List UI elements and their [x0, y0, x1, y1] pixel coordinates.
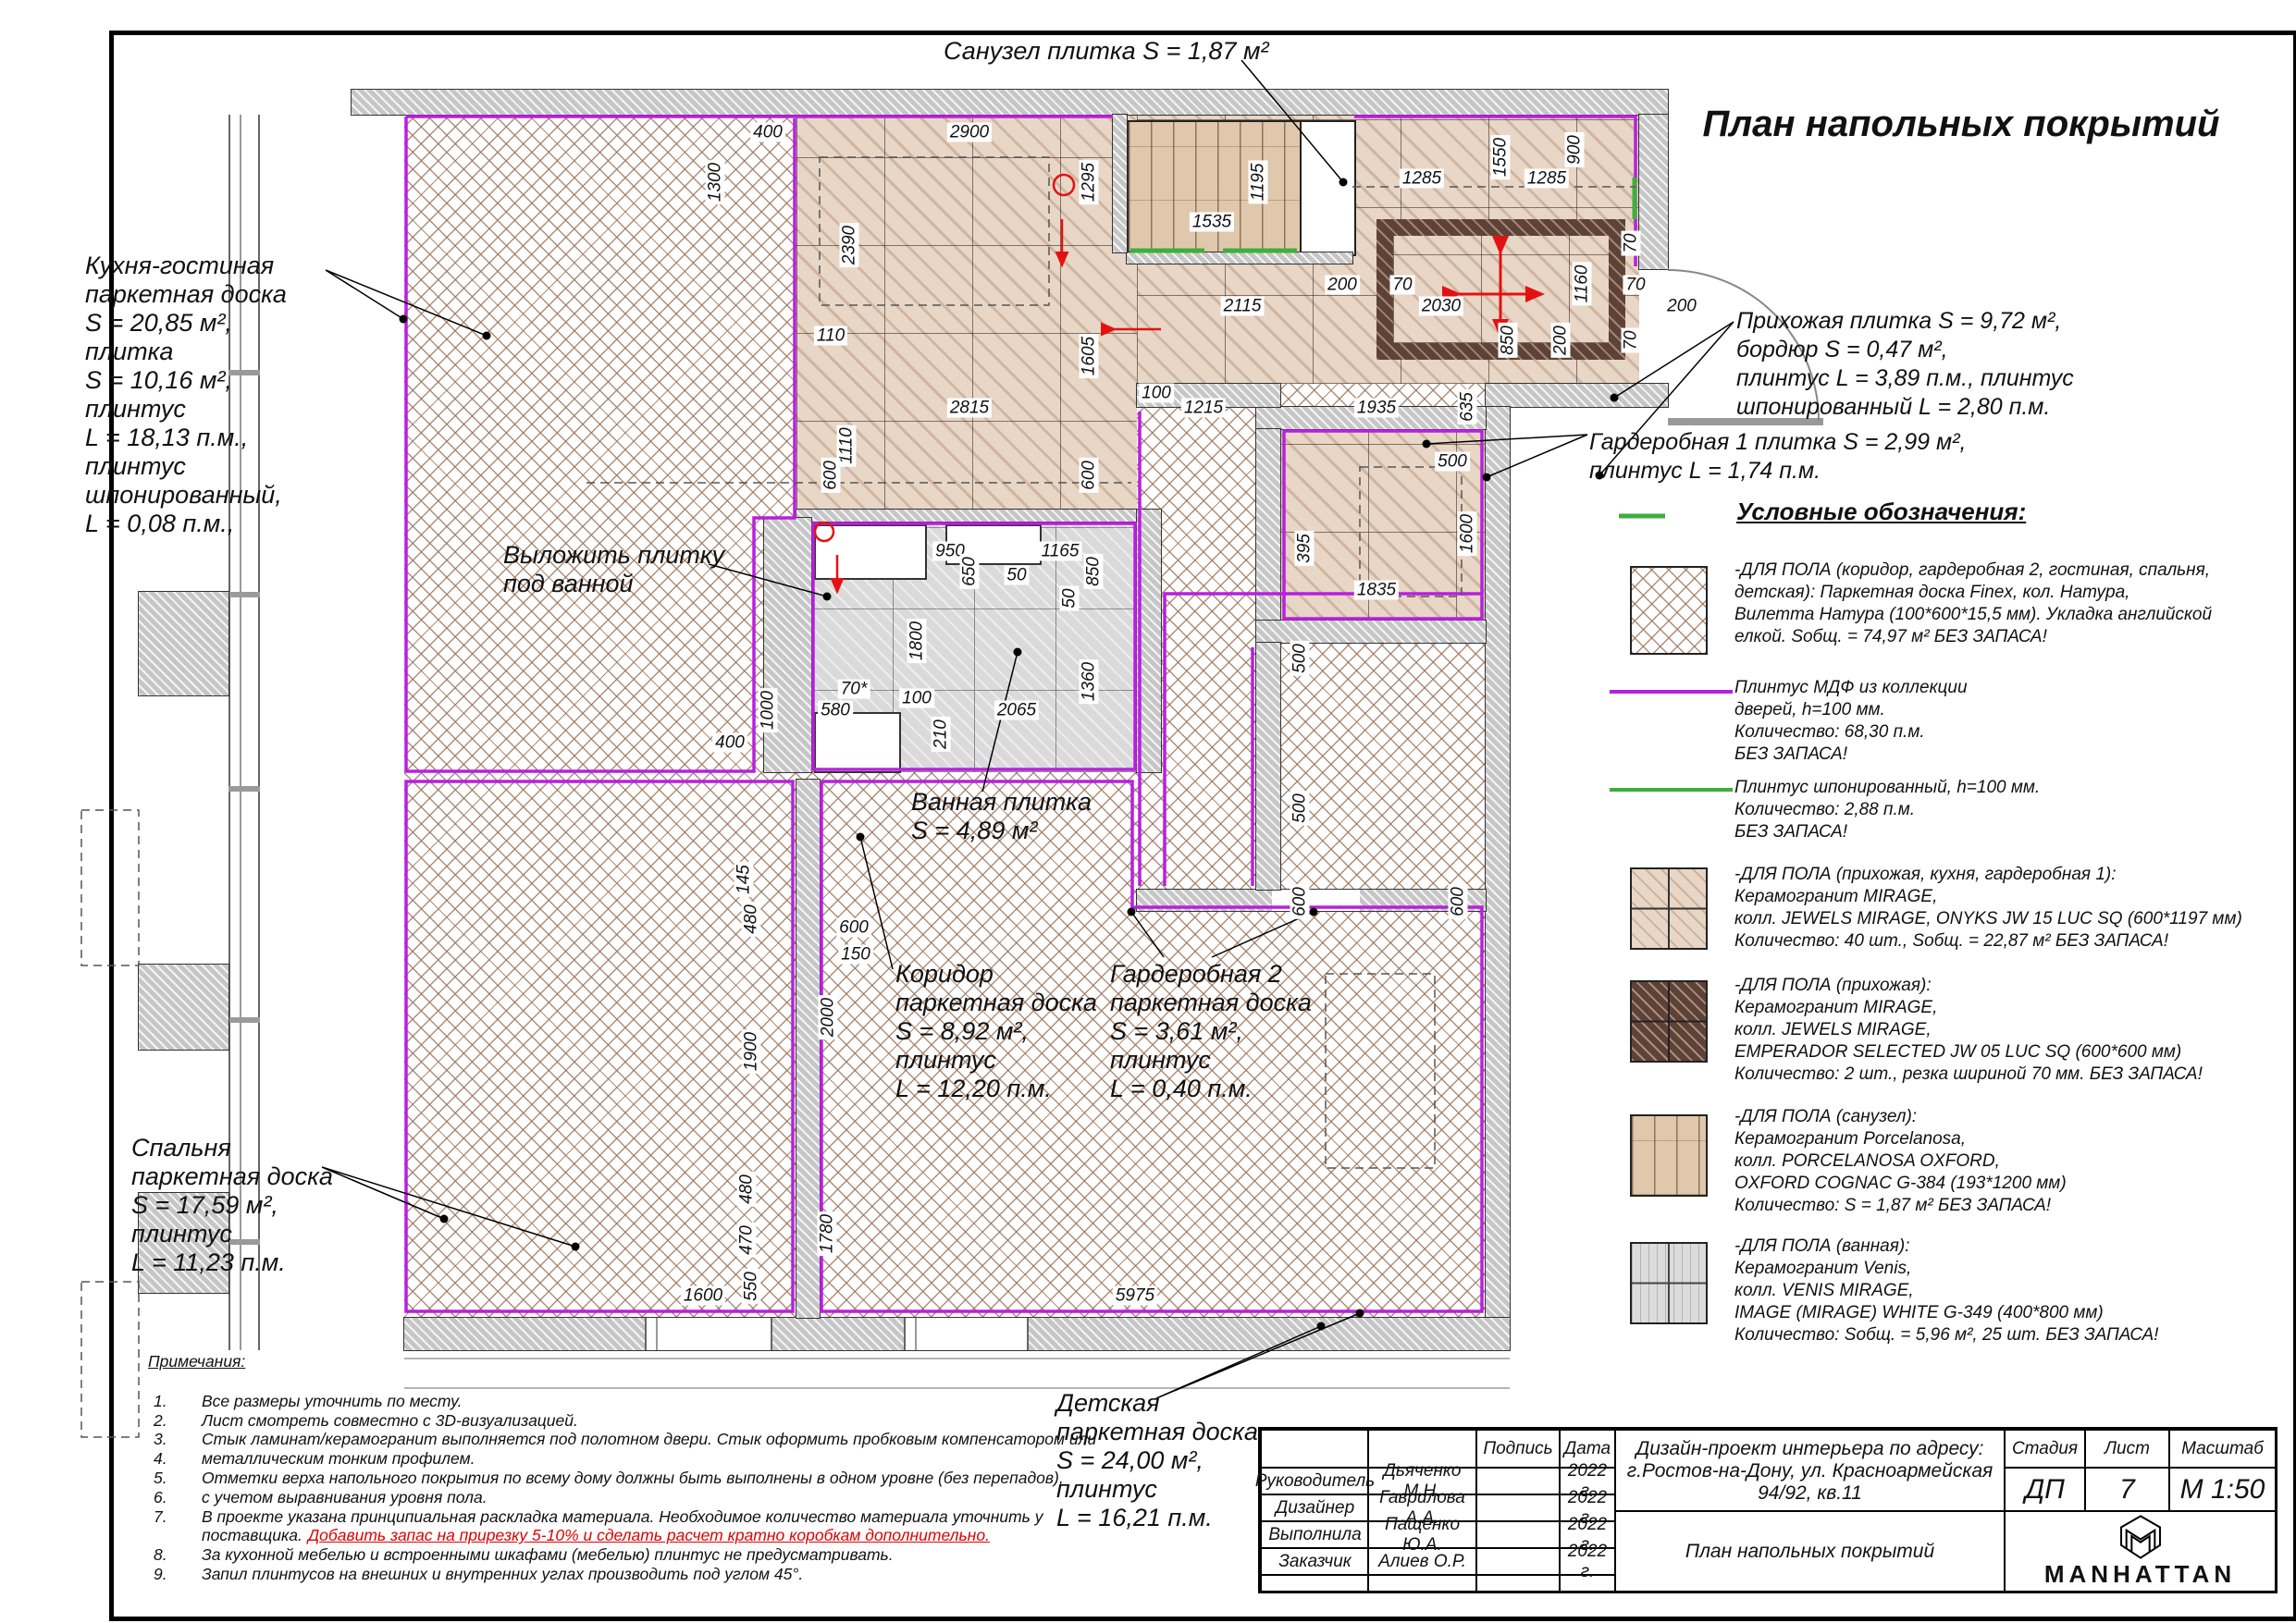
dim-label: 500 — [1290, 641, 1310, 676]
dim-label: 1800 — [907, 619, 927, 663]
dim-label: 145 — [734, 862, 754, 897]
note-text: Стык ламинат/керамогранит выполняется по… — [202, 1430, 1096, 1449]
dim-label: 100 — [1139, 384, 1174, 403]
text-line: Гардеробная 1 плитка S = 2,99 м², — [1589, 428, 1966, 457]
tb-name: Алиев О.Р. — [1367, 1547, 1477, 1576]
dim-label: 1600 — [681, 1286, 725, 1306]
wall — [1256, 429, 1280, 643]
tb-role: Выполнила — [1261, 1520, 1369, 1549]
dim-label: 500 — [1290, 791, 1310, 826]
dim-label: 50 — [1060, 585, 1080, 610]
dim-label: 50 — [1004, 566, 1029, 585]
legend-heading: Условные обозначения: — [1736, 498, 2026, 526]
wall — [796, 510, 1137, 522]
text-line: колл. JEWELS MIRAGE, — [1734, 1019, 2203, 1041]
text-line: Коридор — [895, 960, 1097, 989]
legend-item-plinth-mdf: Плинтус МДФ из коллекциидверей, h=100 мм… — [1734, 677, 1968, 766]
tb-project-line1: Дизайн-проект интерьера по адресу: — [1636, 1438, 1983, 1460]
dim-label: 100 — [899, 689, 934, 708]
text-line: Количество: 68,30 п.м. — [1734, 721, 1968, 744]
text-line: L = 0,08 п.м., — [85, 510, 287, 538]
wc-shaft — [1300, 120, 1356, 256]
dim-label: 600 — [1080, 458, 1099, 493]
legend-swatch-planks — [1630, 1114, 1708, 1197]
text-line: колл. VENIS MIRAGE, — [1734, 1280, 2158, 1302]
annotation-vylozhit: Выложить плиткупод ванной — [503, 541, 724, 598]
dim-label: 900 — [1565, 132, 1585, 167]
dim-label: 1195 — [1249, 161, 1268, 204]
text-line: под ванной — [503, 570, 724, 598]
wall — [1256, 643, 1280, 890]
dim-label: 200 — [1551, 323, 1571, 358]
dim-label: 1000 — [759, 688, 778, 732]
note-item: 6.с учетом выравнивания уровня пола. — [148, 1488, 1119, 1507]
tb-project-line2: г.Ростов-на-Дону, ул. Красноармейская 94… — [1615, 1460, 2005, 1505]
tb-sign-header: Подпись — [1475, 1430, 1561, 1469]
notes-heading: Примечания: — [148, 1352, 1119, 1371]
text-line: S = 8,92 м², — [895, 1017, 1097, 1046]
outer-pier — [139, 592, 228, 695]
manhattan-logo-icon — [2117, 1514, 2165, 1560]
text-line: плинтус L = 3,89 п.м., плинтус — [1736, 364, 2074, 393]
dim-label: 2815 — [947, 399, 992, 418]
dim-label: 1295 — [1080, 160, 1099, 204]
text-line: Количество: 40 шт., Sобщ. = 22,87 м² БЕЗ… — [1734, 930, 2242, 953]
note-number: 7. — [148, 1507, 202, 1527]
dim-label: 210 — [932, 717, 951, 752]
text-line: Гардеробная 2 — [1110, 960, 1312, 989]
note-number: 6. — [148, 1488, 202, 1507]
text-line: L = 18,13 п.м., — [85, 424, 287, 452]
dim-label: 200 — [1664, 297, 1699, 316]
notes-list: 1.Все размеры уточнить по месту.2.Лист с… — [148, 1392, 1119, 1584]
wall — [1256, 621, 1486, 643]
dim-label: 2065 — [994, 701, 1039, 720]
dim-label: 1600 — [1458, 511, 1477, 556]
tb-name: Пащенко Ю.А. — [1367, 1520, 1477, 1549]
note-text: За кухонной мебелью и встроенными шкафам… — [202, 1545, 894, 1565]
text-line: L = 0,40 п.м. — [1110, 1075, 1312, 1103]
annotation-garderob2: Гардеробная 2паркетная доскаS = 3,61 м²,… — [1110, 960, 1312, 1103]
tb-list-value: 7 — [2084, 1467, 2170, 1512]
text-line: БЕЗ ЗАПАСА! — [1734, 744, 1968, 766]
text-line: детская): Паркетная доска Finex, кол. На… — [1734, 582, 2212, 604]
text-line: Количество: Sобщ. = 5,96 м², 25 шт. БЕЗ … — [1734, 1324, 2158, 1346]
note-item: 8.За кухонной мебелью и встроенными шкаф… — [148, 1545, 1119, 1565]
note-text: с учетом выравнивания уровня пола. — [202, 1488, 488, 1507]
dim-label: 70* — [838, 680, 870, 699]
wall — [1127, 252, 1352, 264]
note-number: 9. — [148, 1565, 202, 1584]
dim-label: 70 — [1623, 276, 1648, 295]
legend-item-tile-dark: -ДЛЯ ПОЛА (прихожая):Керамогранит MIRAGE… — [1734, 975, 2203, 1086]
note-item: 1.Все размеры уточнить по месту. — [148, 1392, 1119, 1411]
tb-empty — [1475, 1574, 1561, 1592]
note-number: 8. — [148, 1545, 202, 1565]
dim-label: 110 — [814, 326, 847, 346]
note-text: Запил плинтусов на внешних и внутренних … — [202, 1565, 803, 1584]
dim-label: 600 — [1290, 884, 1310, 919]
text-line: колл. PORCELANOSA OXFORD, — [1734, 1150, 2067, 1173]
sheet: { "title": "План напольных покрытий", "a… — [0, 0, 2296, 1623]
note-item: 5.Отметки верха напольного покрытия по в… — [148, 1469, 1119, 1488]
dim-label: 1900 — [742, 1029, 761, 1074]
note-text: металлическим тонким профилем. — [202, 1449, 475, 1469]
door-gap — [1272, 890, 1360, 911]
text-line: елкой. Sобщ. = 74,97 м² БЕЗ ЗАПАСА! — [1734, 626, 2212, 648]
dim-label: 1285 — [1400, 169, 1444, 189]
wall — [1639, 115, 1668, 269]
tb-empty — [1261, 1574, 1369, 1592]
text-line: IMAGE (MIRAGE) WHITE G-349 (400*800 мм) — [1734, 1302, 2158, 1324]
note-warning-text: Добавить запас на прирезку 5-10% и сдела… — [308, 1526, 990, 1545]
text-line: паркетная доска — [1110, 989, 1312, 1017]
note-item: 2.Лист смотреть совместно с 3D-визуализа… — [148, 1411, 1119, 1431]
dim-label: 480 — [737, 1172, 757, 1207]
text-line: OXFORD COGNAC G-384 (193*1200 мм) — [1734, 1173, 2067, 1195]
note-number: 1. — [148, 1392, 202, 1411]
dim-label: 1835 — [1354, 581, 1399, 600]
legend-swatch-tile-beige — [1630, 867, 1708, 950]
tb-role: Заказчик — [1261, 1547, 1369, 1576]
text-line: бордюр S = 0,47 м², — [1736, 336, 2074, 364]
room-wc-planks — [1127, 120, 1303, 256]
legend-swatch-parquet — [1630, 566, 1708, 655]
dim-label: 635 — [1458, 389, 1477, 424]
outer-pier — [139, 965, 228, 1050]
text-line: плинтус L = 1,74 п.м. — [1589, 457, 1966, 486]
dim-label: 600 — [1449, 884, 1468, 919]
annotation-garderob1: Гардеробная 1 плитка S = 2,99 м²,плинтус… — [1589, 428, 1966, 486]
tb-sign — [1475, 1547, 1561, 1576]
text-line: S = 3,61 м², — [1110, 1017, 1312, 1046]
text-line: S = 17,59 м², — [131, 1191, 333, 1220]
dim-label: 5975 — [1113, 1286, 1157, 1306]
legend-swatch-plinth-veneer — [1610, 788, 1733, 792]
text-line: Ванная плитка — [911, 788, 1092, 817]
page-title: План напольных покрытий — [1702, 104, 2220, 145]
text-line: Количество: 2 шт., резка шириной 70 мм. … — [1734, 1064, 2203, 1086]
legend-swatch-plinth-mdf — [1610, 690, 1733, 694]
tb-scale-value: М 1:50 — [2168, 1467, 2277, 1512]
dim-label: 395 — [1295, 531, 1315, 566]
wall — [1137, 510, 1161, 772]
note-number: 5. — [148, 1469, 202, 1488]
dim-label: 70 — [1389, 276, 1414, 295]
dim-label: 500 — [1435, 452, 1470, 472]
window-sill — [228, 786, 260, 792]
note-number: 2. — [148, 1411, 202, 1431]
wall — [1486, 384, 1668, 407]
tb-empty — [1367, 1574, 1477, 1592]
text-line: паркетная доска — [131, 1162, 333, 1191]
legend-swatch-tile-gray — [1630, 1242, 1708, 1324]
annotation-prihozhaya: Прихожая плитка S = 9,72 м²,бордюр S = 0… — [1736, 307, 2074, 422]
legend-item-planks: -ДЛЯ ПОЛА (санузел):Керамогранит Porcela… — [1734, 1106, 2067, 1217]
text-line: L = 12,20 п.м. — [895, 1075, 1097, 1103]
notes: Примечания: 1.Все размеры уточнить по ме… — [148, 1352, 1119, 1584]
tb-date: 2022 г. — [1559, 1547, 1616, 1576]
legend-swatch-tile-dark — [1630, 980, 1708, 1063]
note-item: 3.Стык ламинат/керамогранит выполняется … — [148, 1430, 1119, 1449]
dim-label: 480 — [742, 902, 761, 937]
text-line: Кухня-гостиная — [85, 252, 287, 280]
window-sill — [228, 592, 260, 597]
text-line: дверей, h=100 мм. — [1734, 699, 1968, 721]
dim-label: 1935 — [1354, 399, 1399, 418]
text-line: -ДЛЯ ПОЛА (коридор, гардеробная 2, гости… — [1734, 559, 2212, 582]
legend-item-tile-beige: -ДЛЯ ПОЛА (прихожая, кухня, гардеробная … — [1734, 864, 2242, 953]
dim-label: 2900 — [947, 123, 992, 142]
dim-label: 400 — [712, 733, 747, 753]
dim-label: 2000 — [819, 995, 838, 1039]
dim-label: 200 — [1325, 276, 1360, 295]
tb-stage-value: ДП — [2004, 1467, 2086, 1512]
wall — [1486, 407, 1510, 1343]
text-line: Количество: 2,88 п.м. — [1734, 799, 2040, 821]
dim-label: 580 — [818, 701, 853, 720]
text-line: плитка — [85, 338, 287, 366]
text-line: плинтус — [85, 452, 287, 481]
dim-label: 70 — [1622, 230, 1641, 255]
dim-label: 1160 — [1573, 263, 1592, 306]
dim-label: 150 — [838, 945, 873, 965]
tb-empty — [1559, 1574, 1616, 1592]
text-line: Керамогранит MIRAGE, — [1734, 997, 2203, 1019]
tb-stage-label: Стадия — [2004, 1430, 2086, 1469]
dim-label: 1360 — [1080, 659, 1099, 704]
dim-label: 2030 — [1419, 297, 1463, 316]
tb-role: Руководитель — [1261, 1467, 1369, 1495]
tb-sign — [1475, 1520, 1561, 1549]
text-line: -ДЛЯ ПОЛА (санузел): — [1734, 1106, 2067, 1128]
annotation-spalnya: Спальняпаркетная доскаS = 17,59 м²,плинт… — [131, 1134, 333, 1277]
wall — [796, 780, 820, 1318]
note-text: поставщика. — [202, 1526, 302, 1545]
tb-project: Дизайн-проект интерьера по адресу: г.Рос… — [1614, 1430, 2006, 1512]
manhattan-logo-text: MANHATTAN — [2044, 1560, 2236, 1589]
tb-scale-label: Масштаб — [2168, 1430, 2277, 1469]
note-item: поставщика.Добавить запас на прирезку 5-… — [148, 1526, 1119, 1545]
dim-label: 1605 — [1080, 334, 1099, 378]
note-text: Лист смотреть совместно с 3D-визуализаци… — [202, 1411, 578, 1431]
text-line: Выложить плитку — [503, 541, 724, 570]
note-number: 4. — [148, 1449, 202, 1469]
legend-item-plinth-veneer: Плинтус шпонированный, h=100 мм.Количест… — [1734, 777, 2040, 843]
text-line: шпонированный L = 2,80 п.м. — [1736, 393, 2074, 422]
text-line: Прихожая плитка S = 9,72 м², — [1736, 307, 2074, 336]
text-line: Плинтус МДФ из коллекции — [1734, 677, 1968, 699]
dim-label: 1165 — [1039, 542, 1082, 561]
dim-label: 1535 — [1190, 213, 1234, 232]
note-text: В проекте указана принципиальная расклад… — [202, 1507, 1043, 1527]
note-text: Отметки верха напольного покрытия по все… — [202, 1469, 1064, 1488]
dim-label: 1550 — [1491, 135, 1511, 179]
annotation-koridor: Коридорпаркетная доскаS = 8,92 м²,плинту… — [895, 960, 1097, 1103]
window — [645, 1318, 772, 1350]
tb-list-label: Лист — [2084, 1430, 2170, 1469]
wall — [352, 90, 1668, 115]
tb-logo-cell: MANHATTAN — [2004, 1510, 2277, 1592]
text-line: S = 4,89 м² — [911, 817, 1092, 845]
text-line: колл. JEWELS MIRAGE, ONYKS JW 15 LUC SQ … — [1734, 908, 2242, 930]
note-item: 9.Запил плинтусов на внешних и внутренни… — [148, 1565, 1119, 1584]
annotation-vannaya: Ванная плиткаS = 4,89 м² — [911, 788, 1092, 845]
dim-label: 70 — [1622, 327, 1641, 352]
annotation-sanuzel: Санузел плитка S = 1,87 м² — [944, 37, 1268, 66]
text-line: -ДЛЯ ПОЛА (прихожая): — [1734, 975, 2203, 997]
wall — [1113, 115, 1127, 252]
text-line: Вилетта Натура (100*600*15,5 мм). Укладк… — [1734, 604, 2212, 626]
dim-label: 850 — [1499, 323, 1518, 358]
dim-label: 2390 — [840, 223, 859, 267]
dim-label: 650 — [960, 554, 980, 589]
dim-label: 550 — [742, 1269, 761, 1304]
window — [904, 1318, 1029, 1350]
text-line: плинтус — [131, 1220, 333, 1248]
text-line: паркетная доска — [895, 989, 1097, 1017]
text-line: Спальня — [131, 1134, 333, 1162]
text-line: S = 20,85 м², — [85, 309, 287, 338]
dim-label: 600 — [836, 918, 871, 938]
tb-sign — [1475, 1494, 1561, 1522]
text-line: Керамогранит Venis, — [1734, 1258, 2158, 1280]
tb-role: Дизайнер — [1261, 1494, 1369, 1522]
dim-label: 600 — [821, 458, 841, 493]
tb-sign — [1475, 1467, 1561, 1495]
dim-label: 1300 — [706, 160, 725, 204]
text-line: Плинтус шпонированный, h=100 мм. — [1734, 777, 2040, 799]
note-number — [148, 1526, 202, 1545]
tb-empty — [1261, 1430, 1369, 1469]
dim-label: 400 — [750, 123, 785, 142]
text-line: -ДЛЯ ПОЛА (ванная): — [1734, 1236, 2158, 1258]
note-text: Все размеры уточнить по месту. — [202, 1392, 463, 1411]
dim-label: 1285 — [1524, 169, 1569, 189]
text-line: Керамогранит MIRAGE, — [1734, 886, 2242, 908]
text-line: шпонированный, — [85, 481, 287, 510]
tb-sheet-title: План напольных покрытий — [1614, 1510, 2006, 1592]
note-item: 7.В проекте указана принципиальная раскл… — [148, 1507, 1119, 1527]
text-line: S = 10,16 м², — [85, 366, 287, 395]
text-line: БЕЗ ЗАПАСА! — [1734, 821, 2040, 843]
window-sill — [228, 1017, 260, 1023]
annotation-kitchen: Кухня-гостинаяпаркетная доскаS = 20,85 м… — [85, 252, 287, 538]
text-line: плинтус — [895, 1046, 1097, 1075]
note-number: 3. — [148, 1430, 202, 1449]
text-line: L = 11,23 п.м. — [131, 1248, 333, 1277]
dim-label: 1780 — [818, 1211, 837, 1256]
bath-fixture-2 — [814, 712, 901, 773]
text-line: EMPERADOR SELECTED JW 05 LUC SQ (600*600… — [1734, 1041, 2203, 1064]
dim-label: 2115 — [1221, 297, 1265, 316]
dim-label: 850 — [1084, 554, 1104, 589]
title-block: Подпись Дата Руководитель Дьяченко М.Н. … — [1258, 1427, 2277, 1593]
dim-label: 470 — [737, 1223, 757, 1258]
text-line: плинтус — [1110, 1046, 1312, 1075]
legend-item-parquet: -ДЛЯ ПОЛА (коридор, гардеробная 2, гости… — [1734, 559, 2212, 648]
text-line: паркетная доска — [85, 280, 287, 309]
dim-label: 1215 — [1181, 399, 1226, 418]
note-item: 4.металлическим тонким профилем. — [148, 1449, 1119, 1469]
text-line: Количество: S = 1,87 м² БЕЗ ЗАПАСА! — [1734, 1195, 2067, 1217]
wall — [764, 518, 811, 772]
text-line: Керамогранит Porcelanosa, — [1734, 1128, 2067, 1150]
legend-item-tile-gray: -ДЛЯ ПОЛА (ванная):Керамогранит Venis,ко… — [1734, 1236, 2158, 1346]
bathtub — [814, 524, 927, 580]
text-line: -ДЛЯ ПОЛА (прихожая, кухня, гардеробная … — [1734, 864, 2242, 886]
text-line: плинтус — [85, 395, 287, 424]
